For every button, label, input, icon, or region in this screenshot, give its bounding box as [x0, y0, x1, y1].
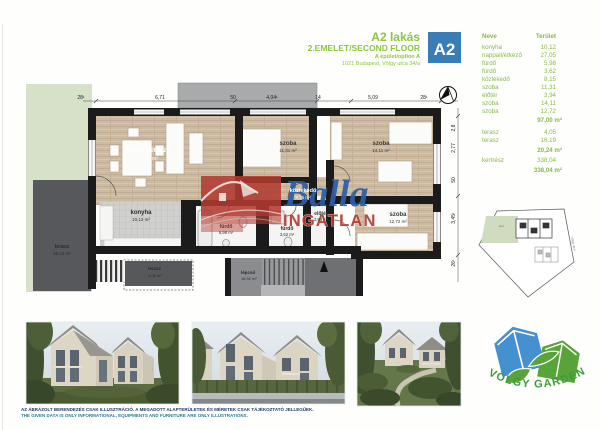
svg-text:5,09: 5,09 [368, 95, 378, 101]
svg-text:3,94: 3,94 [544, 92, 557, 99]
svg-text:Balla: Balla [283, 173, 368, 215]
svg-text:14: 14 [315, 95, 321, 101]
svg-text:1021 Budapest, Völgy utca 34/a: 1021 Budapest, Völgy utca 34/a [342, 61, 421, 67]
svg-text:szoba: szoba [389, 212, 407, 218]
svg-text:konyha: konyha [130, 210, 152, 216]
svg-text:szoba: szoba [372, 141, 390, 147]
svg-text:12,72 m²: 12,72 m² [389, 219, 407, 224]
svg-text:10,12: 10,12 [541, 44, 557, 51]
svg-text:előtér: előtér [482, 92, 497, 99]
svg-text:konyha: konyha [482, 44, 503, 51]
svg-text:4,04¹: 4,04¹ [266, 95, 278, 101]
svg-text:kert: kert [499, 224, 504, 228]
svg-text:46,19 m²: 46,19 m² [53, 251, 71, 256]
svg-text:3,62 m²: 3,62 m² [280, 232, 295, 237]
svg-text:terasz: terasz [55, 244, 70, 250]
svg-text:338,04 m²: 338,04 m² [534, 167, 562, 174]
svg-text:28¹: 28¹ [77, 95, 85, 101]
svg-text:A2 lakás: A2 lakás [371, 30, 420, 44]
svg-text:közlekedő: közlekedő [290, 188, 317, 194]
svg-text:10,12 m²: 10,12 m² [132, 217, 150, 222]
svg-text:14,11: 14,11 [541, 100, 557, 107]
svg-text:A2: A2 [434, 40, 456, 59]
svg-text:50: 50 [451, 177, 457, 183]
svg-text:A épület/option A: A épület/option A [375, 54, 420, 60]
svg-text:AZ ÁBRÁZOLT BERENDEZÉS CSAK IL: AZ ÁBRÁZOLT BERENDEZÉS CSAK ILLUSZTRÁCIÓ… [21, 405, 314, 412]
svg-text:lépcső: lépcső [241, 270, 256, 275]
svg-text:28¹: 28¹ [420, 95, 428, 101]
svg-text:14,11 m²: 14,11 m² [372, 148, 390, 153]
svg-text:11,31 m²: 11,31 m² [279, 148, 297, 153]
svg-text:338,04: 338,04 [537, 157, 556, 164]
svg-text:20,24 m²: 20,24 m² [537, 147, 562, 154]
svg-text:fürdő: fürdő [482, 68, 497, 75]
svg-text:kertrész: kertrész [482, 157, 504, 164]
svg-text:3,45¹: 3,45¹ [451, 212, 457, 224]
svg-text:fürdő: fürdő [482, 60, 497, 67]
svg-text:2,8: 2,8 [451, 124, 457, 131]
svg-text:közlekedő: közlekedő [482, 76, 510, 83]
svg-text:terasz: terasz [148, 266, 162, 271]
svg-text:27,05 m²: 27,05 m² [138, 156, 158, 162]
svg-text:THE GIVEN DATA IS ONLY INFORMA: THE GIVEN DATA IS ONLY INFORMATIONAL, EQ… [21, 413, 248, 418]
svg-text:2,77: 2,77 [451, 143, 457, 153]
svg-text:4,05: 4,05 [544, 129, 557, 136]
svg-text:Terület: Terület [536, 33, 556, 40]
svg-text:11,31: 11,31 [541, 84, 557, 91]
svg-text:terasz: terasz [482, 129, 499, 136]
svg-text:16,19: 16,19 [541, 137, 557, 144]
svg-text:terasz: terasz [482, 137, 499, 144]
svg-text:6,71: 6,71 [155, 95, 165, 101]
svg-text:50: 50 [230, 95, 236, 101]
svg-text:szoba: szoba [482, 84, 499, 91]
svg-text:27,05: 27,05 [541, 52, 557, 59]
svg-text:szoba: szoba [482, 100, 499, 107]
svg-text:szoba: szoba [279, 141, 297, 147]
svg-text:4,05 m²: 4,05 m² [148, 273, 162, 278]
svg-text:Neve: Neve [482, 33, 497, 40]
svg-text:nappali/étkező: nappali/étkező [126, 147, 171, 154]
svg-text:26¹: 26¹ [451, 259, 457, 267]
svg-text:nappali/étkező: nappali/étkező [482, 52, 522, 59]
svg-text:3,62: 3,62 [544, 68, 557, 75]
svg-text:8,15 m²: 8,15 m² [295, 195, 311, 200]
svg-text:5,98: 5,98 [544, 60, 557, 67]
svg-text:szoba: szoba [482, 108, 499, 115]
svg-text:16,92 m²: 16,92 m² [241, 276, 257, 281]
svg-text:INGATLAN: INGATLAN [283, 212, 377, 230]
svg-text:3,94 m²: 3,94 m² [314, 217, 329, 222]
svg-text:2.EMELET/SECOND FLOOR: 2.EMELET/SECOND FLOOR [308, 43, 420, 53]
svg-text:12,72: 12,72 [541, 108, 557, 115]
svg-text:97,00 m²: 97,00 m² [537, 117, 562, 124]
svg-text:8,15: 8,15 [544, 76, 557, 83]
